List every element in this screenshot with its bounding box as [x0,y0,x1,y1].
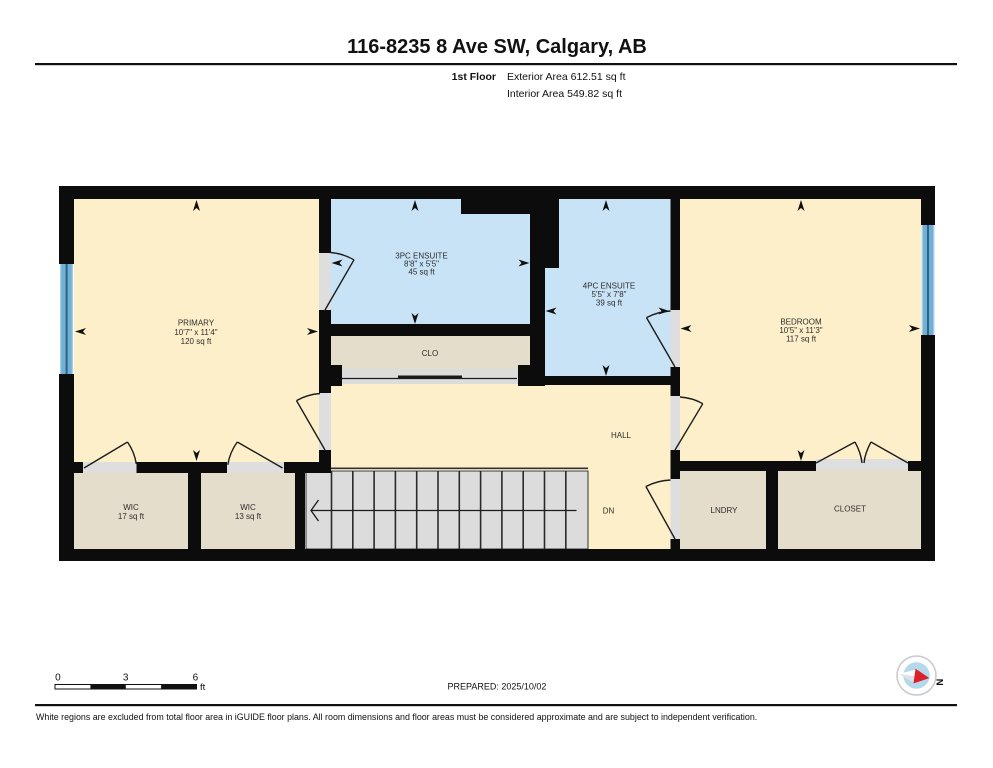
svg-text:WIC: WIC [240,503,256,512]
svg-text:Exterior Area 612.51 sq ft: Exterior Area 612.51 sq ft [507,71,626,83]
svg-text:HALL: HALL [611,431,632,440]
svg-text:6: 6 [193,673,199,684]
svg-text:3: 3 [123,673,129,684]
svg-text:N: N [934,679,945,686]
svg-text:17 sq ft: 17 sq ft [118,512,145,521]
svg-text:1st Floor: 1st Floor [452,71,496,83]
svg-text:10'7" x 11'4": 10'7" x 11'4" [174,328,217,337]
svg-text:0: 0 [55,673,61,684]
svg-text:116-8235 8 Ave SW, Calgary, AB: 116-8235 8 Ave SW, Calgary, AB [347,36,647,58]
svg-text:CLOSET: CLOSET [834,504,866,513]
svg-text:PRIMARY: PRIMARY [178,318,215,327]
svg-text:DN: DN [603,506,615,515]
svg-text:WIC: WIC [123,503,139,512]
svg-text:CLO: CLO [422,349,438,358]
svg-text:120 sq ft: 120 sq ft [181,337,212,346]
svg-text:LNDRY: LNDRY [711,506,739,515]
svg-text:White regions are excluded fro: White regions are excluded from total fl… [36,712,757,722]
svg-text:ft: ft [200,682,206,693]
svg-text:Interior Area 549.82 sq ft: Interior Area 549.82 sq ft [507,88,622,100]
svg-text:45 sq ft: 45 sq ft [408,268,435,277]
svg-text:117 sq ft: 117 sq ft [786,335,817,344]
svg-text:PREPARED: 2025/10/02: PREPARED: 2025/10/02 [448,682,547,692]
svg-text:13 sq ft: 13 sq ft [235,512,262,521]
svg-text:39 sq ft: 39 sq ft [596,298,623,307]
